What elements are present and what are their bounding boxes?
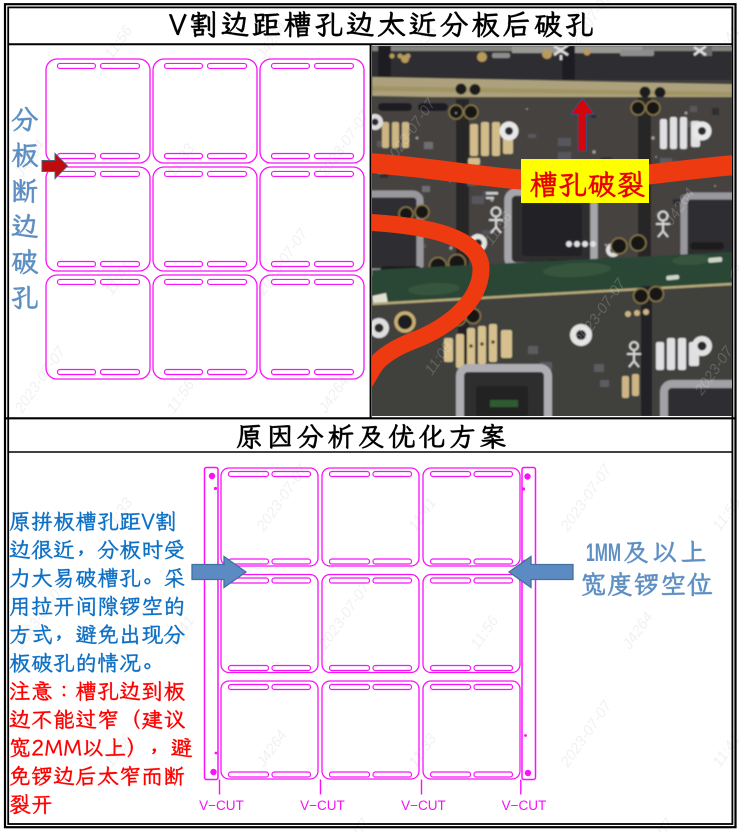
svg-text:J4264: J4264 xyxy=(619,609,657,653)
svg-text:2023-07-07: 2023-07-07 xyxy=(11,343,70,417)
svg-text:11:33: 11:33 xyxy=(163,140,198,180)
svg-text:J4264: J4264 xyxy=(253,19,291,63)
svg-text:2023-07-07: 2023-07-07 xyxy=(0,225,8,299)
svg-text:V−CUT: V−CUT xyxy=(199,798,244,813)
svg-text:2023-07-07: 2023-07-07 xyxy=(253,461,312,535)
svg-text:11:56: 11:56 xyxy=(101,22,136,62)
svg-text:V−CUT: V−CUT xyxy=(502,798,547,813)
svg-text:1MM: 1MM xyxy=(586,539,621,567)
svg-text:2023-07-07: 2023-07-07 xyxy=(253,225,312,299)
svg-text:2023-07-07: 2023-07-07 xyxy=(315,579,374,653)
svg-text:2023-07-07: 2023-07-07 xyxy=(0,0,8,63)
svg-text:11:56: 11:56 xyxy=(467,612,502,652)
svg-text:11:56: 11:56 xyxy=(163,376,198,416)
svg-text:J4264: J4264 xyxy=(315,373,353,417)
svg-text:V−CUT: V−CUT xyxy=(401,798,446,813)
svg-text:2023-07-07: 2023-07-07 xyxy=(0,697,8,771)
svg-text:2023-07-07: 2023-07-07 xyxy=(557,697,616,771)
svg-text:J4264: J4264 xyxy=(253,727,291,771)
svg-text:11:41: 11:41 xyxy=(101,259,136,299)
svg-text:2023-07-07: 2023-07-07 xyxy=(557,461,616,535)
svg-text:2023-07-07: 2023-07-07 xyxy=(315,107,374,181)
svg-text:V−CUT: V−CUT xyxy=(300,798,345,813)
